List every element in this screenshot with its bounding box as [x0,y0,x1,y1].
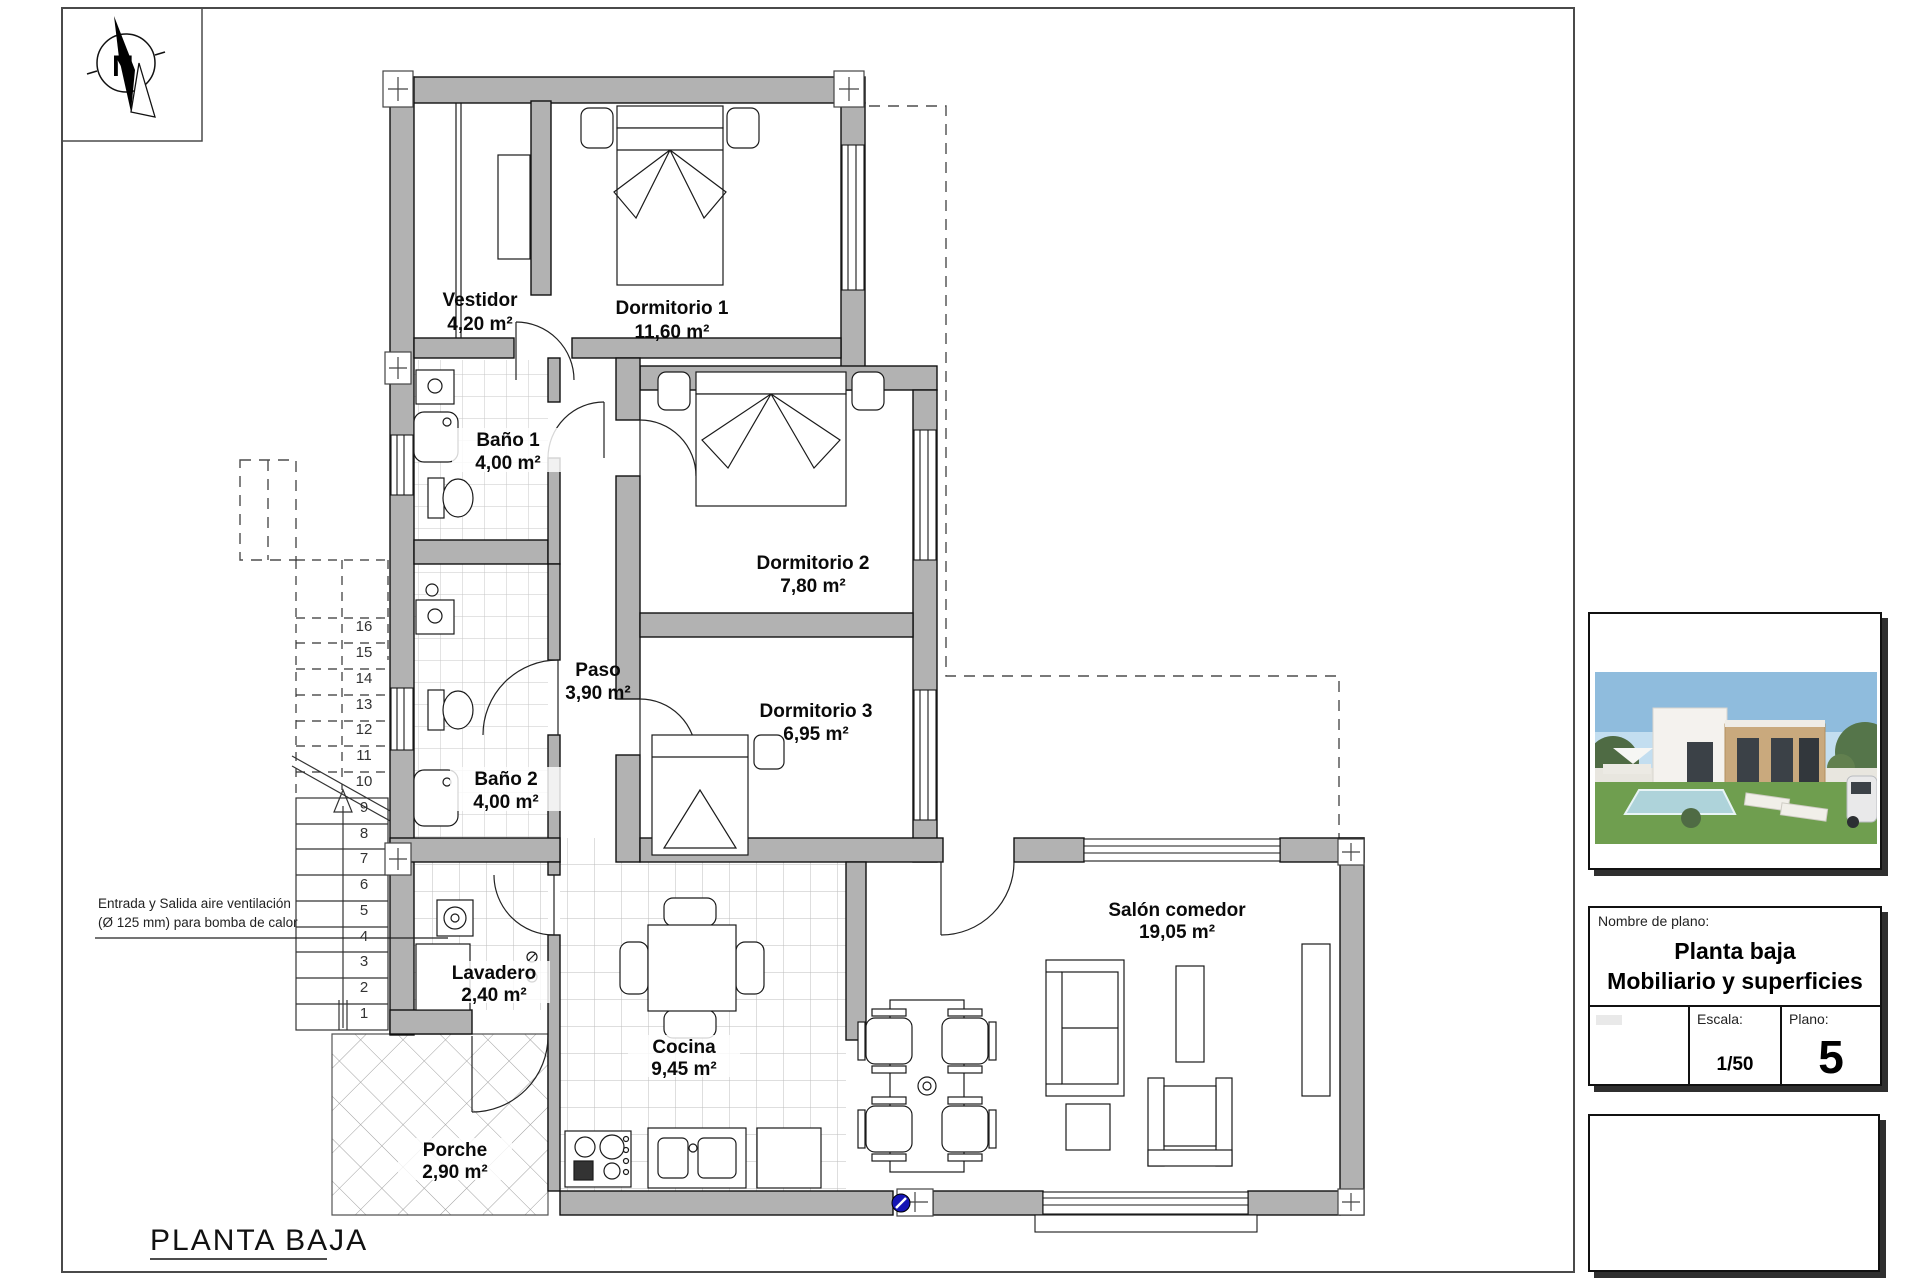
eaves-dashed-line [869,106,1339,838]
note-line-1: Entrada y Salida aire ventilación [98,896,291,911]
wall [1014,838,1084,862]
door-living-entrance [941,862,1014,935]
wall [390,77,865,103]
scale-value: 1/50 [1690,1054,1780,1076]
bed-dorm1 [581,106,759,285]
room-area: 19,05 m² [1139,922,1215,943]
dining-set [858,1000,996,1172]
compass-north-label: N [112,50,134,83]
room-name: Paso [575,660,620,681]
note-line-2: (Ø 125 mm) para bomba de calor [98,915,298,930]
stair-step-number: 5 [360,902,368,919]
window-dorm1 [842,145,864,290]
wall [846,862,866,1040]
room-label-salon-comedor: Salón comedor 19,05 m² [1108,900,1246,943]
dining-chair [942,1009,996,1073]
room-name: Lavadero [452,963,536,984]
staircase [292,560,392,1030]
armchair [1148,1078,1232,1166]
console-table [1176,966,1204,1062]
room-name: Salón comedor [1108,900,1246,921]
tv-sideboard [1302,944,1330,1096]
render-image-box [1588,612,1882,870]
title-block-sheet-cell: Plano: 5 [1782,1007,1880,1086]
stair-lower-flight [296,798,388,1030]
wall [616,358,640,420]
room-label-cocina: Cocina 9,45 m² [651,1037,716,1080]
plan-name-line1: Planta baja [1590,936,1880,966]
room-label-lavadero: Lavadero 2,40 m² [452,963,536,1006]
sheet-number-label: Plano: [1789,1011,1829,1027]
stair-step-number: 10 [356,773,373,790]
wall [616,755,640,862]
porch-tiles [332,1034,548,1215]
empty-notes-box [1588,1114,1880,1272]
kitchen-cabinet [757,1128,821,1188]
wall [548,564,560,660]
stair-cut-line [292,756,392,812]
corner-marker [385,843,411,875]
stair-step-number: 7 [360,850,368,867]
stair-step-number: 4 [360,928,368,945]
room-area: 4,00 m² [473,792,538,813]
room-area: 11,60 m² [635,322,710,343]
door-dorm2 [640,420,696,476]
window-bath1 [391,435,413,495]
room-label-dormitorio-1: Dormitorio 1 11,60 m² [616,298,729,343]
room-area: 4,20 m² [447,314,512,335]
room-label-vestidor: Vestidor 4,20 m² [443,290,519,335]
wall [414,540,548,564]
sofa [1046,960,1124,1096]
toilet [428,690,473,730]
corner-marker [834,71,864,107]
wall [390,838,560,862]
corner-marker [1338,1189,1364,1215]
stair-step-number: 11 [356,747,372,764]
stair-step-number: 3 [360,953,368,970]
title-block: Nombre de plano: Planta baja Mobiliario … [1588,906,1882,1086]
corner-marker [385,352,411,384]
window-dorm2 [914,430,936,560]
stair-step-number: 6 [360,876,368,893]
title-block-header: Nombre de plano: Planta baja Mobiliario … [1590,908,1880,1007]
title-block-empty-cell [1590,1007,1690,1086]
sheet-number-value: 5 [1782,1030,1880,1084]
stair-step-number: 1 [360,1005,368,1022]
toilet [428,478,473,518]
corner-marker [1338,839,1364,865]
window-bath2 [391,688,413,750]
corner-marker [383,71,413,107]
wardrobe [498,155,530,259]
wall [390,1010,472,1034]
wall [560,1191,893,1215]
bed-dorm2 [658,372,884,506]
ventilation-symbol [892,1194,910,1212]
wall [933,1191,1043,1215]
room-name: Dormitorio 1 [616,298,729,319]
plan-name-label: Nombre de plano: [1598,913,1709,929]
wall [414,338,514,358]
window-dorm3 [914,690,936,820]
room-label-dormitorio-2: Dormitorio 2 7,80 m² [757,553,870,597]
room-area: 7,80 m² [780,576,845,597]
room-area: 4,00 m² [475,453,540,474]
wall [548,862,560,875]
house-render-image [1595,672,1877,844]
room-name: Porche [423,1140,487,1161]
north-compass: N [62,8,202,141]
room-name: Baño 1 [476,430,540,451]
dining-chair [942,1097,996,1161]
wall [1340,838,1364,1215]
window-living-bottom [1035,1192,1257,1232]
room-area: 2,90 m² [422,1162,487,1183]
bed-dorm3 [652,735,784,855]
stair-upper-flight [296,560,388,798]
room-area: 3,90 m² [565,683,630,704]
room-name: Cocina [652,1037,716,1058]
dining-chair [858,1097,912,1161]
room-name: Dormitorio 3 [760,701,873,722]
stair-step-number: 13 [356,696,373,713]
plan-title-text: PLANTA BAJA [150,1224,368,1257]
room-area: 6,95 m² [783,724,848,745]
stair-step-number: 9 [360,799,368,816]
room-name: Baño 2 [474,769,537,790]
wall [1248,1191,1340,1215]
room-area: 2,40 m² [461,985,526,1006]
room-area: 9,45 m² [651,1059,716,1080]
wall [390,77,414,1035]
stair-step-number: 14 [356,670,373,687]
title-block-scale-cell: Escala: 1/50 [1690,1007,1782,1086]
stair-step-number: 2 [360,979,368,996]
wall [531,101,551,295]
plan-name-line2: Mobiliario y superficies [1590,966,1880,996]
window-living-top [1084,839,1280,861]
stair-step-number: 12 [356,721,373,738]
room-name: Vestidor [443,290,519,311]
stove [565,1131,631,1187]
side-table [1066,1104,1110,1150]
wall [640,613,913,637]
plan-title: PLANTA BAJA [150,1224,368,1259]
room-name: Dormitorio 2 [757,553,870,574]
stair-step-numbers: 1 2 3 4 5 6 7 8 9 10 11 12 13 14 15 16 [356,618,373,1022]
stair-step-number: 8 [360,825,368,842]
wall [548,358,560,402]
stair-step-number: 16 [356,618,373,635]
erased-text [1596,1015,1622,1025]
wall [548,458,560,564]
stair-step-number: 15 [356,644,373,661]
room-label-porche: Porche 2,90 m² [422,1140,487,1183]
kitchen-sink [648,1128,746,1188]
scale-label: Escala: [1697,1011,1743,1027]
